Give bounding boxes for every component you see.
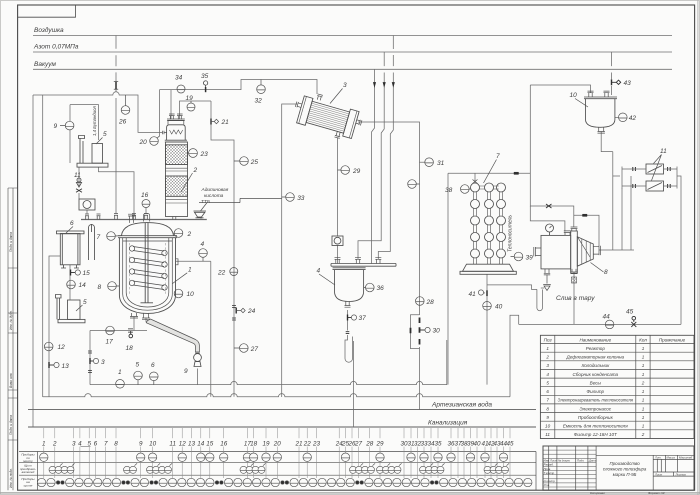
svg-text:18: 18 [126,345,134,352]
svg-text:8: 8 [114,440,118,447]
svg-text:22: 22 [217,270,226,277]
svg-text:1: 1 [188,267,192,274]
svg-text:41: 41 [469,291,477,298]
svg-text:Т.контр.: Т.контр. [544,471,556,475]
svg-text:15: 15 [206,440,214,447]
svg-text:8: 8 [604,269,608,276]
svg-text:1,4 Бутандиол: 1,4 Бутандиол [92,106,97,136]
svg-text:11: 11 [169,440,176,447]
svg-text:Копировал: Копировал [590,491,605,495]
svg-text:45: 45 [506,440,514,447]
svg-text:1: 1 [642,424,645,429]
svg-text:8: 8 [98,284,102,291]
svg-text:8: 8 [546,406,549,411]
svg-text:Реактор: Реактор [586,346,606,351]
svg-text:28: 28 [426,299,435,306]
svg-text:27: 27 [354,440,363,447]
svg-text:1: 1 [642,346,645,351]
svg-text:Вакуум: Вакуум [34,61,57,68]
svg-text:7: 7 [496,153,500,160]
svg-text:9: 9 [184,368,188,375]
svg-text:Листов: Листов [675,472,687,476]
svg-text:Канализация: Канализация [428,420,468,427]
svg-text:Слив в тару: Слив в тару [556,295,595,302]
svg-text:Утв.: Утв. [544,483,551,487]
svg-text:25: 25 [250,159,259,166]
svg-text:Подп.: Подп. [577,459,585,463]
svg-text:9: 9 [54,123,58,130]
svg-text:35: 35 [201,73,209,80]
svg-text:Лит.: Лит. [654,456,662,460]
svg-text:19: 19 [262,440,270,447]
svg-text:Фильтр: Фильтр [587,389,605,394]
svg-text:6: 6 [151,362,155,369]
svg-text:месту: месту [23,459,33,463]
svg-text:Наименование: Наименование [579,338,611,343]
svg-text:16: 16 [141,192,149,199]
svg-text:23: 23 [200,151,209,158]
svg-text:14: 14 [197,440,205,447]
svg-text:44: 44 [603,314,611,321]
svg-text:6: 6 [546,389,549,394]
svg-text:15: 15 [83,270,91,277]
svg-text:3: 3 [546,363,549,368]
svg-text:10: 10 [187,291,195,298]
svg-text:Производство: Производство [610,461,641,466]
svg-text:21: 21 [221,119,230,126]
svg-text:23: 23 [312,440,321,447]
svg-text:1: 1 [642,406,645,411]
svg-text:39: 39 [526,254,534,261]
svg-text:6: 6 [94,440,98,447]
svg-text:30: 30 [433,328,441,335]
svg-text:Масштаб: Масштаб [679,456,692,460]
svg-text:17: 17 [106,339,114,346]
svg-text:Весы: Весы [590,381,602,386]
svg-text:18: 18 [250,440,258,447]
svg-text:Дата: Дата [588,459,597,463]
svg-text:Холодильник: Холодильник [580,363,610,368]
svg-text:вателей: вателей [22,470,35,474]
svg-text:35: 35 [434,440,442,447]
svg-text:9: 9 [546,415,549,420]
svg-text:26: 26 [118,119,127,126]
svg-text:38: 38 [445,187,453,194]
svg-text:1: 1 [546,346,549,351]
svg-text:Емкость для теплоносителя: Емкость для теплоносителя [563,424,628,429]
svg-text:Артезианская вода: Артезианская вода [431,401,492,409]
svg-text:2: 2 [187,231,192,238]
svg-text:4: 4 [201,241,205,248]
svg-text:3: 3 [343,82,347,89]
svg-text:кислота: кислота [204,194,224,199]
svg-text:40: 40 [473,440,481,447]
svg-text:2: 2 [52,440,57,447]
svg-text:1: 1 [642,363,645,368]
svg-text:Сборник конденсата: Сборник конденсата [572,372,618,377]
svg-text:Поз: Поз [544,338,553,343]
svg-text:36: 36 [377,285,385,292]
svg-text:сложного полиэфира: сложного полиэфира [603,467,647,472]
svg-text:Кол: Кол [639,338,647,343]
svg-text:10: 10 [545,424,551,429]
svg-text:щите: щите [24,483,33,487]
svg-text:2: 2 [545,355,549,360]
svg-text:Адипиновая: Адипиновая [201,187,229,193]
svg-text:29: 29 [352,168,361,175]
svg-text:Дефлегматорная колонна: Дефлегматорная колонна [565,355,624,360]
svg-text:5: 5 [136,362,140,369]
svg-text:13: 13 [62,363,70,370]
svg-text:Подп. и дата: Подп. и дата [9,415,13,435]
svg-text:1: 1 [642,415,645,420]
svg-text:37: 37 [359,315,367,322]
svg-text:6: 6 [70,220,74,227]
svg-text:12: 12 [179,440,187,447]
svg-text:1: 1 [642,355,645,360]
svg-text:1: 1 [642,398,645,403]
svg-text:20: 20 [139,139,148,146]
svg-text:29: 29 [375,440,384,447]
svg-text:7: 7 [104,440,108,447]
svg-text:Подп. и дата: Подп. и дата [9,232,13,252]
svg-text:Электронасос: Электронасос [579,406,611,411]
svg-text:11: 11 [660,148,667,155]
svg-text:11: 11 [74,172,81,179]
svg-text:7: 7 [97,234,101,241]
svg-text:5: 5 [87,440,91,447]
svg-text:21: 21 [294,440,302,447]
svg-text:Лист: Лист [654,472,663,476]
svg-text:Пробоотборник: Пробоотборник [578,415,614,420]
svg-text:40: 40 [495,304,503,311]
svg-text:4: 4 [78,440,82,447]
svg-text:Инв. № подл.: Инв. № подл. [9,468,13,488]
svg-text:14: 14 [79,282,87,289]
svg-text:19: 19 [186,95,194,102]
svg-text:1: 1 [118,369,122,376]
svg-text:2: 2 [641,432,645,437]
svg-text:42: 42 [629,115,637,122]
svg-text:33: 33 [297,195,305,202]
svg-text:20: 20 [273,440,282,447]
svg-text:13: 13 [188,440,196,447]
svg-text:1: 1 [642,372,645,377]
svg-text:24: 24 [247,308,256,315]
svg-text:2: 2 [641,381,645,386]
svg-text:32: 32 [255,98,263,105]
svg-text:Теплоноситель: Теплоноситель [508,215,514,252]
svg-text:43: 43 [624,80,632,87]
svg-text:7: 7 [546,398,549,403]
svg-text:10: 10 [570,92,578,99]
svg-text:1: 1 [42,440,46,447]
svg-text:27: 27 [250,346,259,353]
svg-text:Взам. инв.: Взам. инв. [9,373,13,388]
svg-text:Воздушка: Воздушка [34,26,64,34]
svg-text:2: 2 [193,167,198,174]
svg-text:31: 31 [437,160,445,167]
svg-text:Масса: Масса [667,456,676,460]
svg-text:4: 4 [317,268,321,275]
svg-text:28: 28 [365,440,374,447]
svg-text:4: 4 [546,372,549,377]
svg-text:Примечание: Примечание [659,338,686,343]
svg-text:Фильтр 12-18Н 10Т: Фильтр 12-18Н 10Т [574,432,618,437]
svg-text:Электронагреватель теплоносите: Электронагреватель теплоносителя [558,398,634,403]
svg-text:5: 5 [83,299,87,306]
svg-text:марки П-9Б: марки П-9Б [613,472,637,477]
svg-text:№ докум.: № докум. [558,459,571,463]
svg-text:16: 16 [220,440,228,447]
svg-text:3: 3 [72,440,76,447]
svg-text:5: 5 [103,131,107,138]
svg-text:1: 1 [642,389,645,394]
svg-text:12: 12 [58,344,66,351]
svg-text:Формат А3: Формат А3 [648,491,665,495]
svg-text:9: 9 [139,440,143,447]
svg-text:10: 10 [149,440,157,447]
svg-text:Азот 0,07МПа: Азот 0,07МПа [33,44,79,51]
svg-text:34: 34 [175,75,183,82]
svg-text:45: 45 [626,309,634,316]
svg-text:22: 22 [303,440,312,447]
svg-text:3: 3 [101,359,105,366]
svg-text:5: 5 [546,381,549,386]
svg-text:11: 11 [545,432,550,437]
svg-text:Инв. № дубл.: Инв. № дубл. [9,310,13,330]
